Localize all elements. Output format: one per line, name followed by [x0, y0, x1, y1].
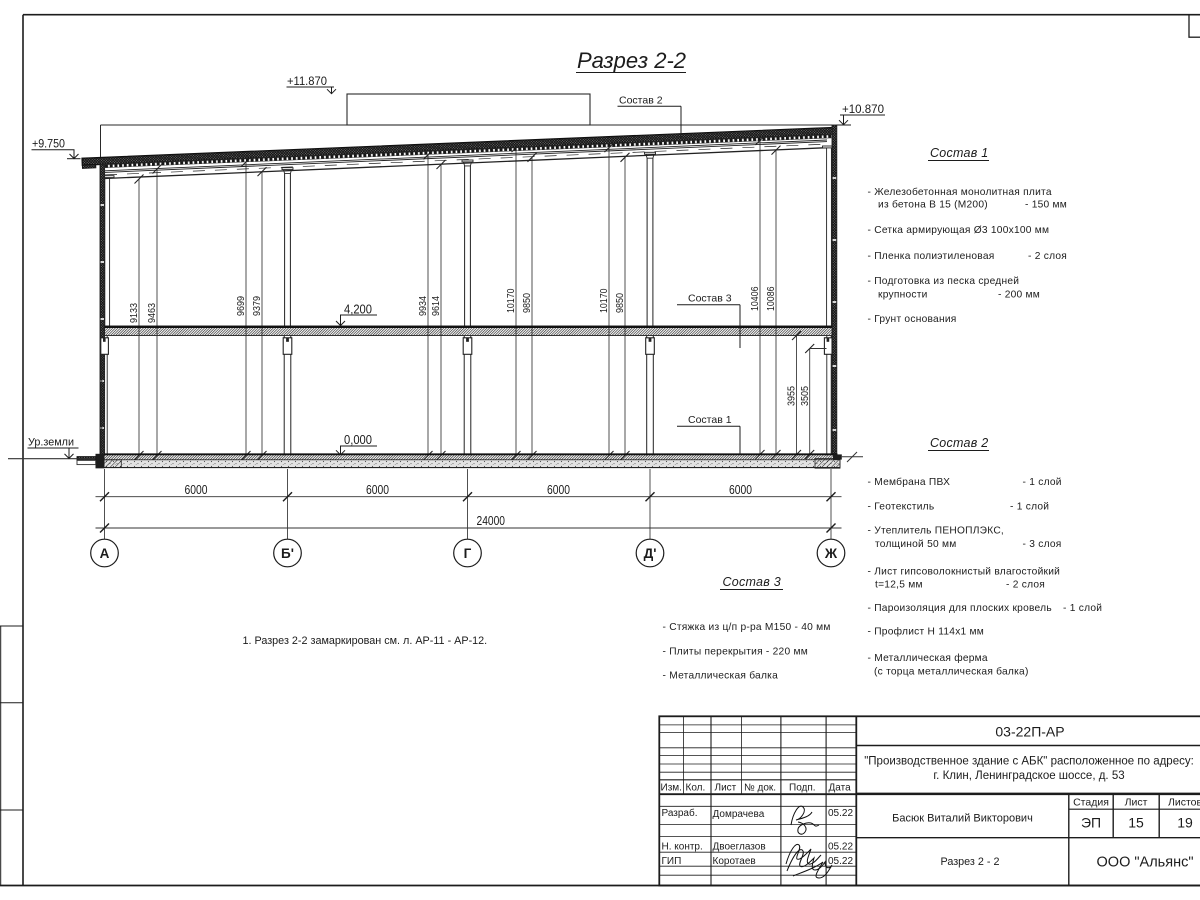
svg-text:Разрез 2-2: Разрез 2-2: [577, 48, 686, 73]
svg-text:- 1 слой: - 1 слой: [1010, 502, 1049, 513]
svg-text:6000: 6000: [729, 482, 752, 497]
svg-text:9379: 9379: [251, 296, 263, 316]
svg-text:Состав 3: Состав 3: [688, 293, 732, 305]
svg-text:10170: 10170: [505, 288, 517, 313]
svg-text:Ж: Ж: [824, 546, 838, 561]
svg-text:- Геотекстиль: - Геотекстиль: [868, 502, 935, 513]
svg-text:- Сетка армирующая Ø3 100х100: - Сетка армирующая Ø3 100х100 мм: [868, 225, 1050, 236]
svg-text:15: 15: [1128, 815, 1144, 831]
svg-text:Листов: Листов: [1168, 797, 1200, 809]
svg-text:9699: 9699: [235, 296, 247, 316]
svg-text:"Производственное здание с АБК: "Производственное здание с АБК" располож…: [864, 756, 1194, 768]
svg-text:г. Клин, Ленинградское шоссе,: г. Клин, Ленинградское шоссе, д. 53: [933, 770, 1124, 782]
svg-text:10406: 10406: [749, 286, 761, 311]
svg-text:Разрез 2 - 2: Разрез 2 - 2: [940, 856, 999, 868]
svg-text:9133: 9133: [128, 303, 140, 323]
svg-text:Коротаев: Коротаев: [713, 856, 756, 867]
svg-text:- 2 слоя: - 2 слоя: [1006, 580, 1045, 591]
svg-text:1. Разрез 2-2 замаркирован см.: 1. Разрез 2-2 замаркирован см. л. АР-11 …: [243, 635, 488, 647]
svg-text:3955: 3955: [786, 386, 798, 406]
svg-text:Состав 2: Состав 2: [930, 436, 988, 450]
svg-text:- Мембрана ПВХ: - Мембрана ПВХ: [868, 476, 951, 488]
svg-text:Стадия: Стадия: [1073, 797, 1109, 809]
svg-text:Лист: Лист: [1125, 797, 1148, 809]
svg-text:6000: 6000: [185, 482, 208, 497]
svg-text:9934: 9934: [417, 296, 429, 316]
svg-text:9850: 9850: [521, 293, 533, 313]
svg-text:Состав 3: Состав 3: [723, 575, 781, 589]
svg-text:+10.870: +10.870: [842, 102, 884, 116]
svg-text:- Плиты перекрытия - 220 мм: - Плиты перекрытия - 220 мм: [663, 647, 808, 658]
svg-text:03-22П-АР: 03-22П-АР: [995, 724, 1064, 740]
svg-text:10170: 10170: [598, 288, 610, 313]
svg-text:Басюк Виталий Викторович: Басюк Виталий Викторович: [892, 813, 1033, 825]
svg-text:Лист: Лист: [715, 783, 737, 794]
svg-text:Состав 1: Состав 1: [930, 146, 988, 160]
svg-text:- Пленка полиэтиленовая: - Пленка полиэтиленовая: [868, 251, 995, 262]
svg-text:Г: Г: [464, 546, 472, 561]
svg-text:- Утеплитель ПЕНОПЛЭКС,: - Утеплитель ПЕНОПЛЭКС,: [868, 526, 1005, 537]
svg-text:9614: 9614: [430, 296, 442, 316]
svg-text:19: 19: [1177, 815, 1193, 831]
svg-text:- 200 мм: - 200 мм: [998, 290, 1040, 301]
svg-text:Дата: Дата: [829, 783, 852, 794]
svg-text:- Стяжка из ц/п р-ра М150 - 40: - Стяжка из ц/п р-ра М150 - 40 мм: [663, 622, 831, 633]
svg-text:ООО "Альянс": ООО "Альянс": [1097, 855, 1194, 871]
svg-text:- 1 слой: - 1 слой: [1063, 603, 1102, 614]
svg-text:Разраб.: Разраб.: [662, 807, 698, 819]
svg-text:+9.750: +9.750: [32, 137, 65, 151]
svg-text:9463: 9463: [146, 303, 158, 323]
svg-text:- Пароизоляция для плоских кро: - Пароизоляция для плоских кровель: [868, 603, 1052, 614]
svg-text:4,200: 4,200: [344, 303, 372, 317]
svg-text:№ док.: № док.: [744, 783, 776, 794]
svg-text:крупности: крупности: [878, 290, 928, 301]
svg-text:Домрачева: Домрачева: [713, 809, 765, 820]
svg-text:Подп.: Подп.: [789, 783, 816, 794]
svg-text:t=12,5 мм: t=12,5 мм: [875, 580, 923, 591]
svg-text:Двоеглазов: Двоеглазов: [713, 842, 766, 853]
svg-text:ГИП: ГИП: [662, 856, 682, 867]
svg-text:- Железобетонная монолитная п: - Железобетонная монолитная плита: [868, 186, 1052, 198]
svg-text:Н. контр.: Н. контр.: [662, 842, 703, 853]
svg-text:(с торца металлическая балка): (с торца металлическая балка): [874, 666, 1029, 678]
svg-text:- Металлическая балка: - Металлическая балка: [663, 670, 779, 682]
svg-text:- Профлист Н 114х1 мм: - Профлист Н 114х1 мм: [868, 626, 985, 638]
svg-text:- 150 мм: - 150 мм: [1025, 200, 1067, 211]
svg-text:Б': Б': [281, 546, 294, 561]
svg-text:- Подготовка из песка средней: - Подготовка из песка средней: [868, 276, 1020, 287]
svg-text:Изм.: Изм.: [661, 783, 682, 794]
svg-text:9850: 9850: [614, 293, 626, 313]
svg-text:+11.870: +11.870: [287, 74, 327, 88]
svg-text:из бетона В 15 (М200): из бетона В 15 (М200): [878, 199, 988, 211]
svg-text:24000: 24000: [477, 513, 506, 528]
svg-text:- 2 слоя: - 2 слоя: [1028, 251, 1067, 262]
svg-text:- Грунт основания: - Грунт основания: [868, 314, 957, 325]
svg-text:6000: 6000: [366, 482, 389, 497]
svg-text:толщиной 50 мм: толщиной 50 мм: [875, 539, 957, 550]
svg-text:- Лист гипсоволокнистый влагос: - Лист гипсоволокнистый влагостойкий: [868, 567, 1061, 578]
svg-text:10086: 10086: [765, 286, 777, 311]
svg-text:- 1 слой: - 1 слой: [1023, 477, 1062, 488]
svg-text:6000: 6000: [547, 482, 570, 497]
svg-text:ЭП: ЭП: [1081, 815, 1101, 831]
svg-text:Состав 2: Состав 2: [619, 95, 663, 107]
svg-text:Кол.: Кол.: [686, 783, 706, 794]
svg-text:3505: 3505: [799, 386, 811, 406]
svg-text:- Металлическая ферма: - Металлическая ферма: [868, 652, 988, 664]
svg-text:А: А: [100, 546, 110, 561]
svg-text:- 3 слоя: - 3 слоя: [1023, 539, 1062, 550]
svg-text:Состав 1: Состав 1: [688, 414, 732, 426]
svg-text:Д': Д': [644, 546, 657, 561]
svg-text:05.22: 05.22: [828, 808, 853, 819]
svg-text:Ур.земли: Ур.земли: [28, 437, 74, 449]
svg-text:05.22: 05.22: [828, 842, 853, 853]
svg-text:0,000: 0,000: [344, 433, 372, 447]
